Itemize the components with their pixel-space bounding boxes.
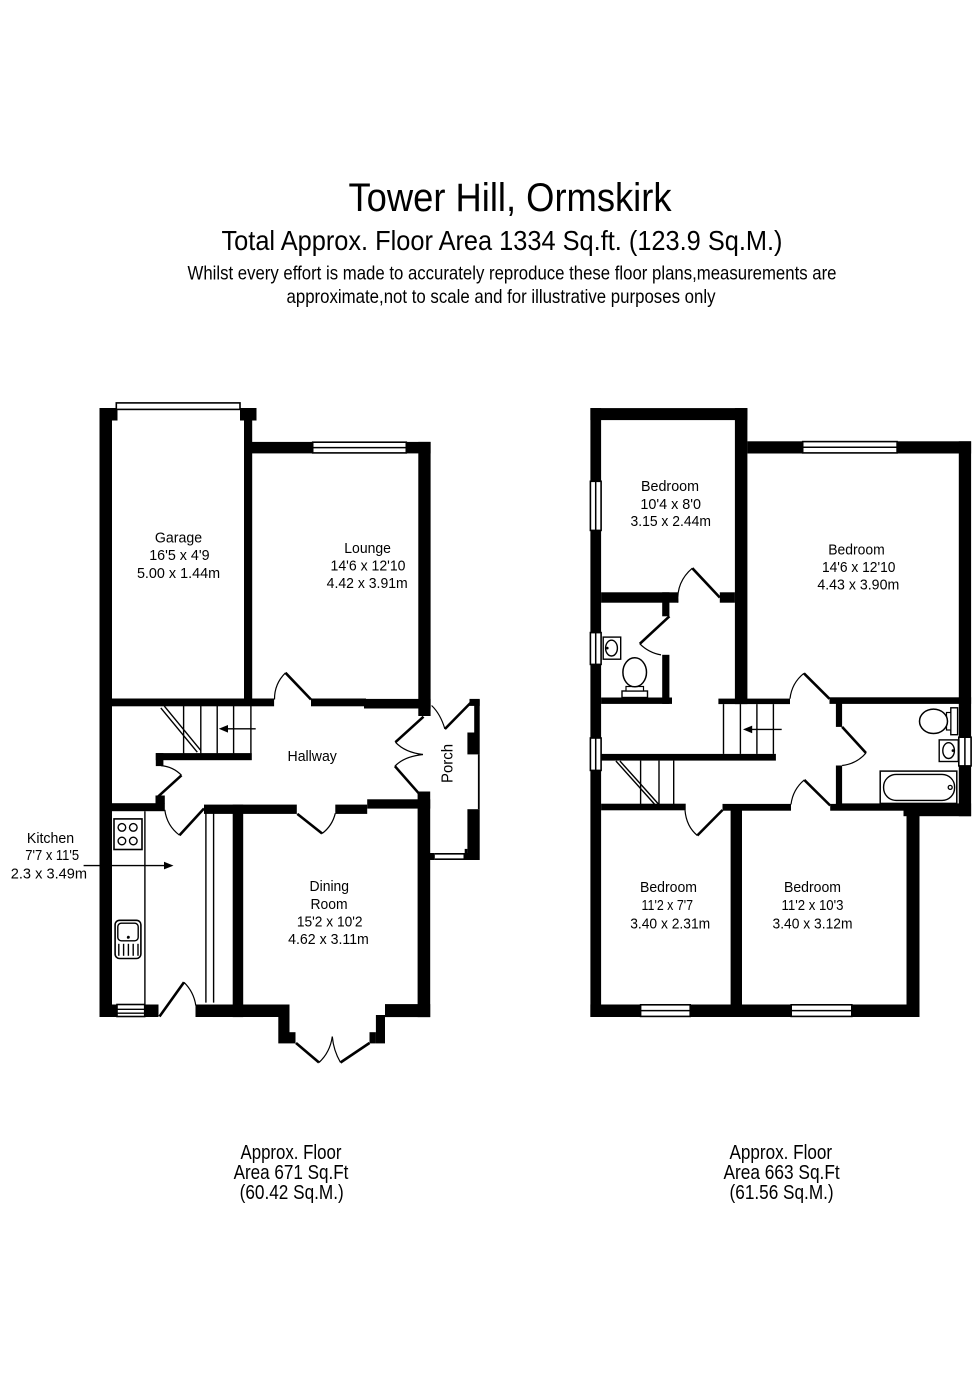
- svg-text:Area 663 Sq.Ft: Area 663 Sq.Ft: [723, 1162, 840, 1184]
- svg-text:15'2 x 10'2: 15'2 x 10'2: [297, 913, 363, 930]
- svg-text:(61.56 Sq.M.): (61.56 Sq.M.): [730, 1182, 834, 1204]
- svg-text:Approx. Floor: Approx. Floor: [730, 1142, 833, 1164]
- svg-text:3.40 x 3.12m: 3.40 x 3.12m: [773, 916, 853, 933]
- svg-text:Hallway: Hallway: [288, 748, 338, 765]
- svg-text:4.42 x 3.91m: 4.42 x 3.91m: [327, 575, 408, 592]
- svg-text:10'4 x 8'0: 10'4 x 8'0: [640, 496, 701, 513]
- svg-text:(60.42 Sq.M.): (60.42 Sq.M.): [240, 1182, 344, 1204]
- svg-text:approximate,not to scale and f: approximate,not to scale and for illustr…: [287, 286, 716, 308]
- svg-text:3.40 x 2.31m: 3.40 x 2.31m: [630, 916, 710, 933]
- svg-text:4.62 x 3.11m: 4.62 x 3.11m: [288, 931, 369, 948]
- svg-text:Garage: Garage: [155, 529, 202, 546]
- svg-text:Bedroom: Bedroom: [641, 478, 699, 495]
- svg-text:Approx. Floor: Approx. Floor: [241, 1142, 342, 1164]
- svg-text:Tower Hill, Ormskirk: Tower Hill, Ormskirk: [349, 176, 673, 220]
- svg-text:Kitchen: Kitchen: [27, 830, 74, 847]
- svg-text:4.43 x 3.90m: 4.43 x 3.90m: [817, 577, 899, 594]
- svg-text:Bedroom: Bedroom: [828, 542, 885, 559]
- svg-text:Whilst every effort is made to: Whilst every effort is made to accuratel…: [188, 263, 837, 285]
- svg-text:11'2 x 10'3: 11'2 x 10'3: [782, 897, 844, 914]
- svg-text:7'7 x 11'5: 7'7 x 11'5: [25, 847, 79, 864]
- svg-text:Total Approx. Floor Area 1334: Total Approx. Floor Area 1334 Sq.ft. (12…: [222, 225, 783, 256]
- svg-text:Lounge: Lounge: [344, 540, 391, 557]
- svg-text:3.15 x 2.44m: 3.15 x 2.44m: [631, 513, 711, 530]
- svg-text:2.3 x 3.49m: 2.3 x 3.49m: [11, 865, 87, 882]
- svg-text:Dining: Dining: [310, 878, 350, 895]
- svg-text:Bedroom: Bedroom: [784, 879, 841, 896]
- svg-text:5.00 x 1.44m: 5.00 x 1.44m: [137, 565, 220, 582]
- svg-text:Bedroom: Bedroom: [640, 879, 697, 896]
- svg-text:Room: Room: [310, 896, 347, 913]
- svg-text:14'6 x 12'10: 14'6 x 12'10: [822, 559, 896, 576]
- svg-text:Porch: Porch: [440, 744, 457, 783]
- svg-text:Area 671 Sq.Ft: Area 671 Sq.Ft: [234, 1162, 349, 1184]
- svg-text:14'6 x 12'10: 14'6 x 12'10: [331, 558, 406, 575]
- svg-text:11'2 x 7'7: 11'2 x 7'7: [642, 897, 694, 914]
- svg-text:16'5 x 4'9: 16'5 x 4'9: [149, 547, 209, 564]
